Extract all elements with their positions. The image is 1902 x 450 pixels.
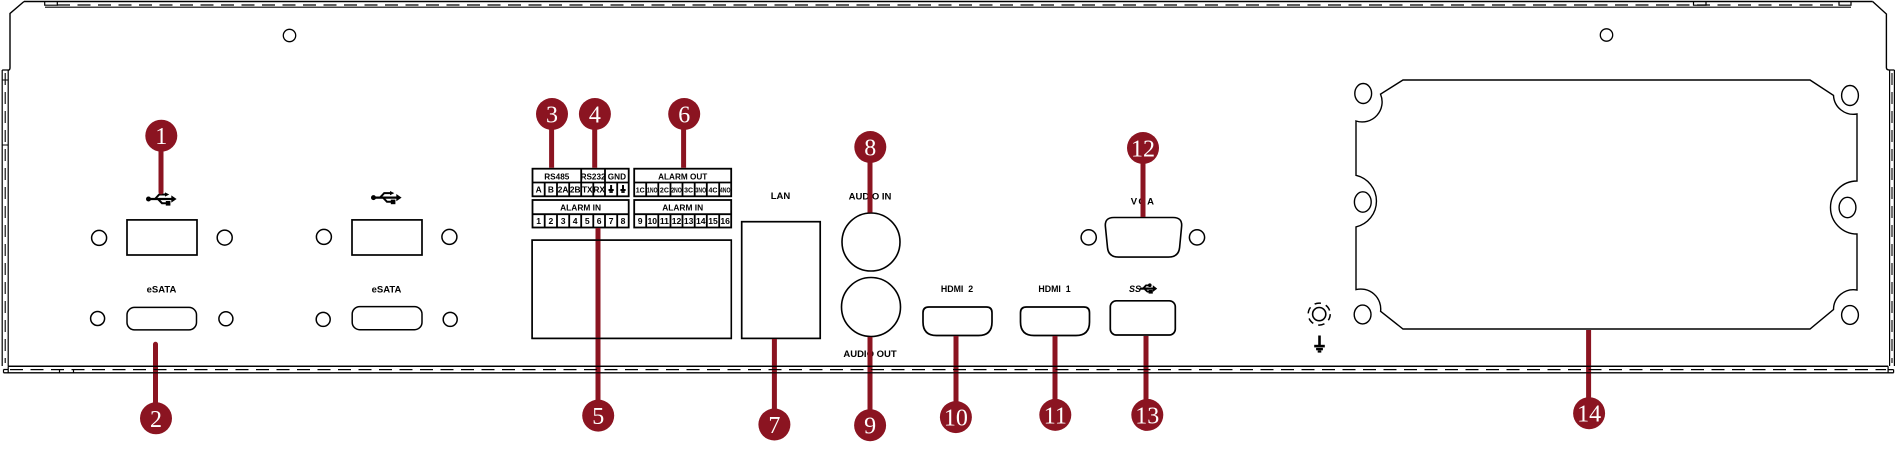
svg-text:13: 13: [684, 216, 694, 226]
svg-text:2: 2: [150, 407, 162, 433]
svg-text:3NO: 3NO: [696, 188, 707, 195]
svg-text:3C: 3C: [684, 188, 693, 195]
svg-text:7: 7: [609, 216, 614, 226]
svg-text:5: 5: [585, 216, 590, 226]
svg-text:RS232: RS232: [581, 172, 606, 181]
svg-text:8: 8: [864, 136, 876, 162]
svg-text:B: B: [548, 185, 554, 195]
svg-text:15: 15: [708, 216, 718, 226]
svg-text:RX: RX: [593, 185, 605, 195]
svg-text:SS: SS: [1129, 284, 1141, 294]
svg-text:13: 13: [1135, 403, 1159, 429]
svg-text:10: 10: [944, 406, 968, 432]
svg-text:ALARM IN: ALARM IN: [662, 203, 703, 213]
svg-text:eSATA: eSATA: [372, 285, 402, 296]
svg-text:14: 14: [1577, 402, 1601, 428]
svg-text:2C: 2C: [660, 188, 669, 195]
svg-text:GND: GND: [608, 172, 626, 181]
svg-text:11: 11: [660, 216, 669, 226]
svg-text:2: 2: [549, 216, 554, 226]
svg-text:11: 11: [1044, 403, 1067, 429]
svg-text:HDMI 2: HDMI 2: [941, 284, 973, 294]
svg-text:4: 4: [573, 216, 578, 226]
svg-text:4C: 4C: [709, 188, 718, 195]
svg-text:8: 8: [621, 216, 626, 226]
svg-text:9: 9: [864, 414, 876, 440]
svg-text:6: 6: [678, 103, 690, 129]
svg-text:1: 1: [155, 124, 167, 150]
svg-text:1C: 1C: [636, 188, 645, 195]
svg-text:RS485: RS485: [544, 172, 569, 181]
svg-text:eSATA: eSATA: [147, 285, 177, 296]
svg-text:A: A: [536, 185, 542, 195]
svg-text:TX: TX: [582, 185, 593, 195]
svg-text:10: 10: [648, 216, 658, 226]
svg-text:7: 7: [768, 413, 780, 439]
svg-text:2NO: 2NO: [671, 188, 682, 195]
svg-text:6: 6: [597, 216, 602, 226]
svg-text:3: 3: [546, 103, 558, 129]
svg-text:ALARM OUT: ALARM OUT: [658, 172, 707, 181]
svg-text:12: 12: [672, 216, 682, 226]
svg-text:14: 14: [696, 216, 706, 226]
svg-text:ALARM IN: ALARM IN: [560, 203, 601, 213]
svg-text:16: 16: [720, 216, 730, 226]
svg-text:12: 12: [1131, 137, 1155, 163]
svg-text:4: 4: [589, 103, 601, 129]
svg-text:4NO: 4NO: [720, 188, 731, 195]
svg-text:3: 3: [561, 216, 566, 226]
svg-text:1: 1: [536, 216, 541, 226]
svg-text:2B: 2B: [570, 185, 581, 195]
svg-text:HDMI 1: HDMI 1: [1038, 284, 1070, 294]
svg-text:1NO: 1NO: [647, 188, 658, 195]
svg-text:5: 5: [592, 404, 604, 430]
svg-text:9: 9: [638, 216, 643, 226]
svg-text:LAN: LAN: [771, 191, 791, 202]
svg-text:2A: 2A: [558, 185, 569, 195]
